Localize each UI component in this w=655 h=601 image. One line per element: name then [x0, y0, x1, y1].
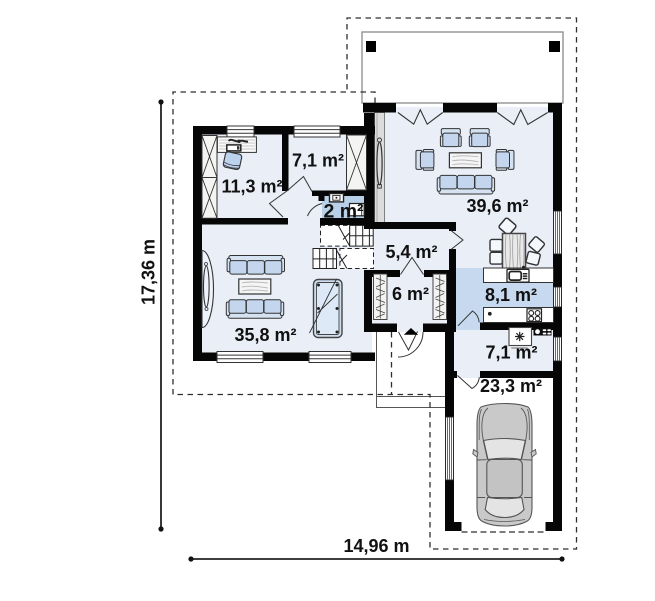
svg-text:7,1 m²: 7,1 m² — [292, 151, 344, 171]
svg-text:23,3 m²: 23,3 m² — [480, 376, 542, 396]
svg-text:7,1 m²: 7,1 m² — [485, 343, 537, 363]
svg-text:35,8 m²: 35,8 m² — [234, 325, 296, 345]
svg-text:17,36 m: 17,36 m — [139, 239, 159, 305]
svg-text:5,4 m²: 5,4 m² — [385, 242, 437, 262]
svg-text:6 m²: 6 m² — [392, 284, 429, 304]
svg-text:14,96 m: 14,96 m — [343, 536, 409, 556]
svg-text:11,3 m²: 11,3 m² — [221, 177, 282, 197]
svg-text:2 m²: 2 m² — [323, 201, 364, 223]
svg-text:39,6 m²: 39,6 m² — [466, 196, 528, 216]
svg-text:8,1 m²: 8,1 m² — [485, 285, 537, 305]
